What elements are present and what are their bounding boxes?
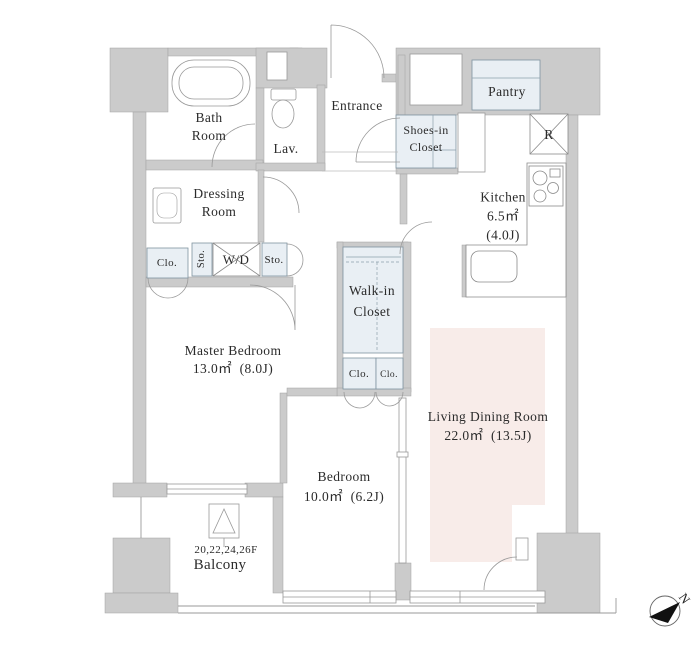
label-balcony: Balcony — [194, 556, 247, 574]
label-closet1: Clo. — [157, 257, 177, 269]
label-walkin-closet: Walk-inCloset — [349, 280, 395, 322]
storage2-door-arcs — [287, 244, 303, 276]
label-shoes-in-closet: Shoes-inCloset — [403, 122, 448, 156]
label-entrance: Entrance — [331, 97, 382, 115]
label-balcony-floors: 20,22,24,26F — [194, 544, 257, 556]
entrance-door-arc — [331, 25, 384, 78]
label-closet2: Clo. — [349, 368, 369, 380]
kitchen-sink-icon — [471, 251, 517, 282]
balcony-hatch-icon — [209, 504, 239, 547]
label-living-dining: Living Dining Room22.0㎡ (13.5J) — [428, 407, 548, 445]
label-master-bedroom: Master Bedroom13.0㎡ (8.0J) — [185, 342, 282, 378]
floor-plan: N BathRoom Lav. Entrance Shoes-inCloset … — [0, 0, 700, 650]
washbasin-icon — [153, 188, 181, 223]
label-closet3: Clo. — [380, 370, 398, 380]
label-storage1: Sto. — [193, 250, 211, 268]
label-bath-room: BathRoom — [192, 109, 227, 145]
master-bedroom-door-arc — [250, 285, 295, 330]
living-dining-highlight — [430, 328, 545, 562]
label-refrigerator: R — [544, 126, 553, 144]
dressing-door-arc — [263, 177, 299, 213]
hall-door-arc — [356, 118, 400, 162]
compass: N — [649, 590, 694, 626]
label-kitchen: Kitchen6.5㎡(4.0J) — [480, 188, 526, 245]
label-storage2: Sto. — [264, 254, 283, 266]
label-bedroom: Bedroom10.0㎡ (6.2J) — [304, 467, 384, 507]
label-washer-dryer: W/D — [223, 251, 249, 269]
entrance-step-lines — [322, 152, 398, 171]
label-lavatory: Lav. — [273, 140, 298, 158]
label-pantry: Pantry — [488, 83, 526, 101]
toilet-icon — [271, 89, 296, 128]
label-dressing-room: DressingRoom — [193, 185, 244, 221]
bathtub-icon — [172, 60, 250, 106]
partition-glass-wall — [399, 398, 406, 563]
